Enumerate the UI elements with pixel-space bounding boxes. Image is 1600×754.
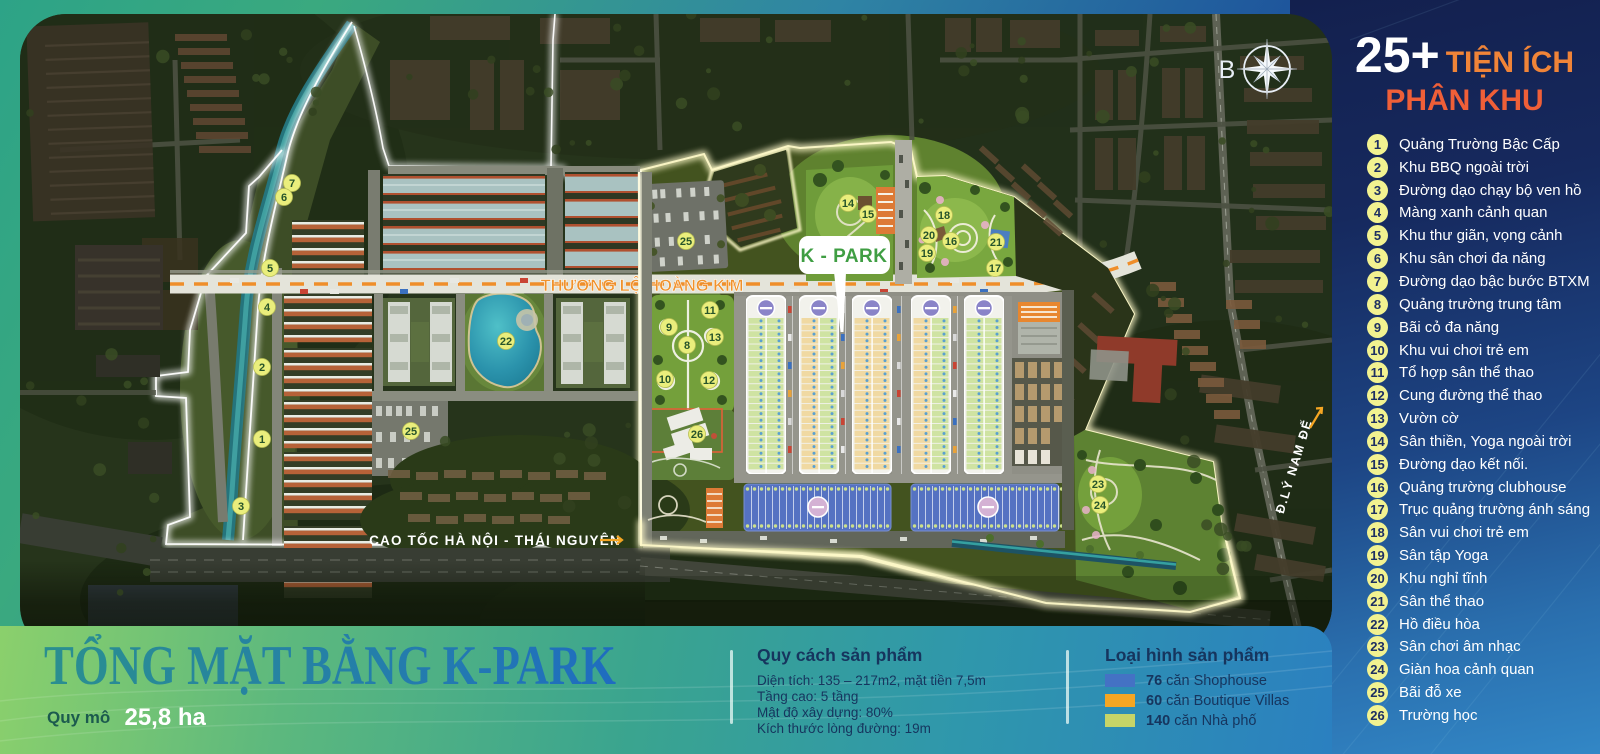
svg-text:25: 25	[680, 236, 692, 248]
svg-text:5: 5	[267, 263, 273, 275]
svg-text:18: 18	[938, 210, 950, 222]
svg-text:K - PARK: K - PARK	[800, 246, 887, 267]
svg-text:4: 4	[264, 302, 271, 314]
svg-text:17: 17	[989, 263, 1001, 275]
svg-text:CAO TỐC HÀ NỘI - THÁI NGUYÊN: CAO TỐC HÀ NỘI - THÁI NGUYÊN	[369, 533, 621, 548]
svg-text:23: 23	[1092, 479, 1104, 491]
svg-text:15: 15	[862, 209, 874, 221]
svg-text:11: 11	[704, 305, 716, 317]
svg-text:7: 7	[289, 178, 295, 190]
svg-text:9: 9	[666, 322, 672, 334]
svg-text:B: B	[1219, 56, 1236, 84]
svg-text:6: 6	[281, 192, 287, 204]
svg-text:13: 13	[709, 332, 721, 344]
svg-text:2: 2	[259, 362, 265, 374]
svg-text:3: 3	[238, 501, 244, 513]
svg-text:21: 21	[990, 237, 1002, 249]
svg-text:8: 8	[684, 340, 690, 352]
svg-text:1: 1	[259, 434, 265, 446]
svg-text:20: 20	[923, 230, 935, 242]
svg-text:19: 19	[921, 248, 933, 260]
svg-text:22: 22	[500, 336, 512, 348]
svg-text:10: 10	[659, 374, 671, 386]
svg-text:26: 26	[691, 429, 703, 441]
svg-text:14: 14	[842, 198, 855, 210]
svg-text:24: 24	[1094, 500, 1107, 512]
svg-text:16: 16	[945, 236, 957, 248]
svg-text:12: 12	[703, 375, 715, 387]
svg-text:25: 25	[405, 426, 417, 438]
